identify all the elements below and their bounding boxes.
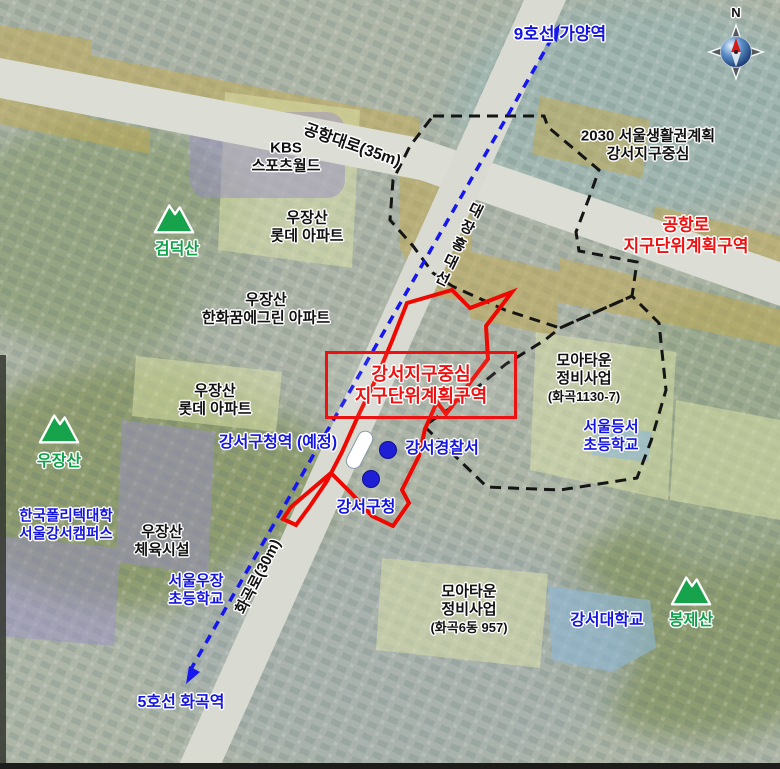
planned-station-label: 강서구청역 (예정) (219, 433, 337, 453)
map-bottom-edge (0, 763, 780, 769)
station-label-gayang: 9호선 가양역 (514, 25, 606, 46)
map-left-edge (0, 355, 6, 769)
mountain-label-geomdeoksan: 검덕산 (155, 240, 199, 260)
mountain-label-ujangsan: 우장산 (37, 452, 81, 472)
compass-north-label: N (731, 5, 740, 21)
deungseo-elementary-label: 서울등서 초등학교 (583, 419, 638, 456)
district-center-zone-box: 강서지구중심 지구단위계획구역 (325, 351, 517, 419)
polytech-label: 한국폴리텍대학 서울강서캠퍼스 (19, 508, 112, 543)
mountain-label-bongjesan: 봉제산 (669, 611, 713, 631)
gu-office-dot (363, 471, 380, 488)
kbs-sportsworld-label: KBS 스포츠월드 (251, 140, 320, 177)
police-station-dot (380, 442, 397, 459)
moatown-hwagok6-label: 모아타운 정비사업 (화곡6동 957) (430, 583, 507, 635)
moatown-1130-label: 모아타운 정비사업 (화곡1130-7) (548, 352, 620, 404)
gangseo-university-label: 강서대학교 (570, 611, 644, 631)
mountain-icon (38, 410, 80, 444)
gu-office-label: 강서구청 (337, 498, 396, 518)
sports-facility-label: 우장산 체육시설 (134, 524, 189, 561)
plan2030-label: 2030 서울생활권계획 강서지구중심 (581, 128, 715, 165)
ujang-elementary-label: 서울우장 초등학교 (168, 573, 223, 610)
police-station-label: 강서경찰서 (405, 439, 479, 459)
gonghangno-zone-label: 공항로 지구단위계획구역 (623, 215, 748, 256)
lotte-apt-north-label: 우장산 롯데 아파트 (270, 210, 343, 247)
mountain-icon (153, 200, 195, 234)
hanwha-apt-label: 우장산 한화꿈에그린 아파트 (202, 292, 330, 329)
station-label-hwagok: 5호선 화곡역 (138, 693, 225, 713)
lotte-apt-west-label: 우장산 롯데 아파트 (178, 383, 251, 420)
mountain-icon (670, 572, 712, 606)
satellite-map: N 9호선 가양역 공항대로(35m) KBS 스포츠월드 2030 서울생활권… (0, 0, 780, 769)
